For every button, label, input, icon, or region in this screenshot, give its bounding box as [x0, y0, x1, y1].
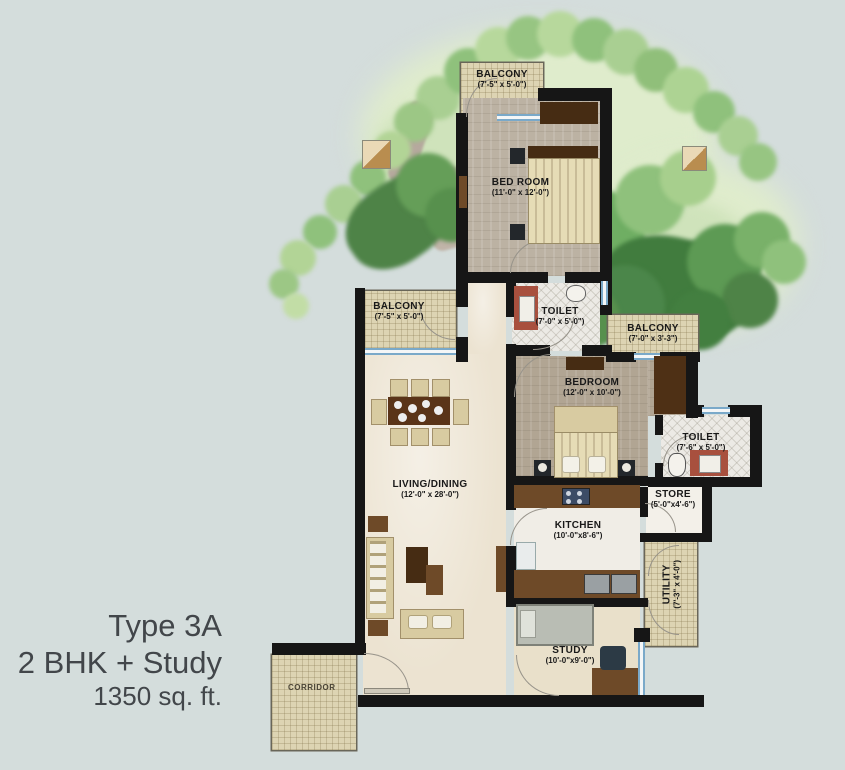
plan-area: 1350 sq. ft. [0, 681, 222, 712]
balcony-left-label: BALCONY (7'-5" x 5'-0") [355, 301, 443, 322]
coffee-table [426, 565, 443, 595]
hallway-floor [468, 276, 506, 362]
washbasin [699, 455, 721, 473]
stove-burner [566, 491, 571, 496]
window [702, 407, 730, 414]
desk [592, 668, 638, 695]
tv-console [496, 546, 506, 592]
dresser [540, 102, 598, 124]
store-label: STORE (5'-0"x4'-6") [640, 489, 706, 510]
wc [566, 285, 586, 302]
sofa-pillow [408, 615, 428, 629]
wc [668, 453, 686, 477]
dining-chair [390, 379, 408, 397]
study-label: STUDY (10'-0"x9'-0") [510, 645, 630, 666]
sink [584, 574, 610, 594]
coffee-table [406, 547, 428, 583]
stove-burner [577, 499, 582, 504]
entrance-door-leaf [364, 688, 410, 694]
plan-title: Type 3A 2 BHK + Study 1350 sq. ft. [0, 608, 222, 712]
sofa-cushions [370, 541, 386, 613]
gazebo-icon [682, 146, 707, 171]
lamp [622, 463, 631, 472]
plate [434, 406, 443, 415]
bed-headboard [554, 406, 618, 434]
utility-label: UTILITY (7'-3" x 4'-0") [662, 529, 683, 639]
nightstand [510, 148, 525, 164]
balcony-right-label: BALCONY (7'-0" x 3'-3") [608, 323, 698, 344]
corridor-floor [272, 655, 356, 750]
lamp [538, 463, 547, 472]
dining-chair [432, 379, 450, 397]
tree [739, 143, 777, 181]
pillow [520, 610, 536, 638]
wardrobe [654, 356, 686, 414]
nightstand [510, 224, 525, 240]
window [365, 348, 456, 355]
dining-chair [432, 428, 450, 446]
bed [528, 158, 600, 244]
plan-type: Type 3A [0, 608, 222, 645]
tree [283, 293, 309, 319]
fridge [516, 542, 536, 570]
bedroom1-label: BED ROOM (11'-0" x 12'-0") [453, 177, 588, 198]
sofa-pillow [432, 615, 452, 629]
bedroom2-label: BEDROOM (12'-0" x 10'-0") [532, 377, 652, 398]
stove-burner [577, 491, 582, 496]
window [638, 642, 645, 695]
dining-chair [371, 399, 387, 425]
dining-chair [390, 428, 408, 446]
plate [408, 404, 417, 413]
corridor-label: CORRIDOR [288, 683, 336, 692]
living-label: LIVING/DINING (12'-0" x 28'-0") [370, 479, 490, 500]
dining-chair [411, 428, 429, 446]
toilet1-label: TOILET (7'-0" x 5'-0") [512, 306, 608, 327]
side-table [368, 620, 388, 636]
dresser [566, 357, 604, 370]
pillow [588, 456, 606, 473]
stove-burner [566, 499, 571, 504]
sink [611, 574, 637, 594]
side-table [368, 516, 388, 532]
tree [722, 272, 778, 328]
floorplan-canvas: BALCONY (7'-5" x 5'-0") BED ROOM (11'-0"… [0, 0, 845, 770]
kitchen-label: KITCHEN (10'-0"x8'-6") [518, 520, 638, 541]
window [601, 281, 608, 305]
dining-chair [453, 399, 469, 425]
plate [422, 400, 430, 408]
balcony-top-label: BALCONY (7'-5" x 5'-0") [458, 69, 546, 90]
window [497, 114, 543, 121]
plate [418, 414, 426, 422]
tree [762, 240, 806, 284]
plan-config: 2 BHK + Study [0, 645, 222, 682]
plate [398, 413, 407, 422]
bed-headboard [528, 146, 598, 158]
plate [394, 401, 402, 409]
gazebo-icon [362, 140, 391, 169]
dining-chair [411, 379, 429, 397]
pillow [562, 456, 580, 473]
toilet2-label: TOILET (7'-6" x 5'-0") [655, 432, 747, 453]
